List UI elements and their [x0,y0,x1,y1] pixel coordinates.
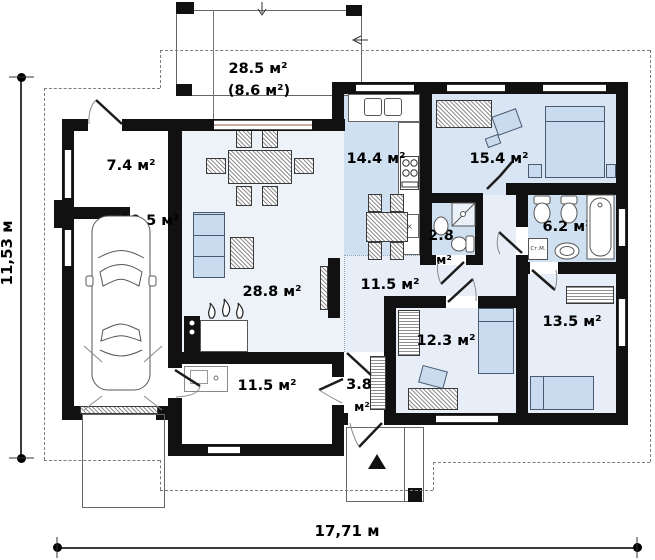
roof-dash-bottom-mid [160,490,433,491]
wardrobe [566,286,614,304]
entry-area-unit-label: м² [350,400,374,413]
window-master-desk [447,84,505,92]
washing-machine-label: Ст.М. [530,246,545,252]
tv-panel [320,266,328,310]
bedroom-3-door-opening [530,262,558,274]
dimension-dot [53,543,62,552]
dining-table [228,150,292,184]
utility-sink [190,370,208,384]
nightstand [606,164,616,178]
bathroom-area-label: 6.2 м² [539,220,595,235]
wall-step-kitchen [332,82,344,131]
dining-chair [206,158,226,174]
sofa [193,212,225,278]
hallway-leg-fill [344,296,384,352]
dimension-dot [17,454,26,463]
double-bed [545,106,605,178]
entry-porch-door-opening [348,413,384,425]
bedroom-2-area-label: 12.3 м² [414,334,478,349]
bedroom-2-door-opening [446,296,478,308]
kitchen-chair [368,194,382,212]
washing-machine: Ст.М. [528,238,548,260]
window-garage [64,230,72,266]
wall-kitchen-right [420,94,432,203]
wall-storage-top [62,119,182,131]
wall-master-bottom [506,183,628,195]
window-kitchen [356,84,414,92]
bedroom-3-area-label: 13.5 м² [540,315,604,330]
hallway-notch-fill [483,195,516,262]
dimension-height-label: 11,53 м [0,213,18,293]
wall-bed2-bed3 [516,274,528,413]
roof-dash-step-br [433,462,434,490]
wc-area-unit-label: м² [432,253,456,266]
terrace-sliding-door [214,120,312,130]
dimension-line-left [20,77,22,458]
utility-door-opening [332,377,344,405]
wall-garage-corner-left [62,406,82,420]
kitchen-chair [390,194,404,212]
dining-chair [236,128,252,148]
wall-living-utility [182,352,344,364]
garage-guides [84,346,162,410]
single-bed [478,308,514,374]
dining-chair [294,158,314,174]
window-utility [208,446,240,454]
window-bathroom [618,209,626,246]
desk [408,388,458,410]
dimension-width-label: 17,71 м [287,524,407,540]
single-bed [530,376,594,410]
window-master-bed [543,84,606,92]
roof-dash-bottom-left [44,460,160,461]
window-storage [64,150,72,198]
living-hall-open-boundary [344,255,345,352]
roof-dash-step-bl [160,460,161,490]
driveway-outline [82,414,165,508]
garage-area-label: 19.5 м² [120,214,180,229]
terrace-post-right [346,5,362,16]
kitchen-chair [390,242,404,260]
roof-dash-left [44,88,45,460]
kitchen-open-boundary [344,255,420,256]
coffee-table [230,237,254,269]
kitchen-sink-basin [364,98,382,116]
tv-wall-stub [328,258,340,318]
storage-area-label: 7.4 м² [100,159,162,174]
entry-hall-door [347,353,371,375]
roof-dash-top [160,50,650,51]
wall-right [616,82,628,425]
roof-dash-step-top [160,50,161,88]
kitchen-sink-basin [384,98,402,116]
terrace-roof-area-label: (8.6 м²) [214,84,304,99]
master-bedroom-area-label: 15.4 м² [467,152,531,167]
window-bedroom-2 [436,415,498,423]
chimney-block [176,2,194,14]
bathroom-door-opening [516,227,528,255]
wall-wc-right [475,203,483,255]
garage-door-sill [80,406,158,414]
kitchen-table [366,212,408,242]
desk [436,100,492,128]
roof-dash-right [650,50,651,462]
roof-dash-top-left [44,88,160,89]
storage-door-opening [88,119,122,131]
dining-chair [262,186,278,206]
roof-dash-bottom-right [433,462,650,463]
dining-chair [236,186,252,206]
entrance-arrow [368,454,386,469]
utility-area-label: 11.5 м² [233,379,301,394]
window-bedroom-3 [618,299,626,346]
terrace-area-label: 28.5 м² [218,62,298,77]
entry-area-value-label: 3.8 [345,378,373,393]
fireplace-stove [184,316,200,354]
kitchen-chair [368,242,382,260]
wc-area-value-label: 2.8 [427,229,455,244]
dimension-dot [633,543,642,552]
terrace-post-left [176,84,192,96]
floor-plan-canvas: × [0,0,655,560]
kitchen-area-label: 14.4 м² [344,152,408,167]
wall-bottom-utility [170,444,344,456]
dimension-dot [17,73,26,82]
garage-utility-door-opening [168,368,182,398]
terrace-edge-line [213,10,214,119]
dimension-line-bottom [57,547,637,549]
fireplace-hearth [200,320,248,352]
dining-chair [262,128,278,148]
car [86,216,156,390]
living-room-area-label: 28.8 м² [240,285,304,300]
hallway-area-label: 11.5 м² [356,278,424,293]
